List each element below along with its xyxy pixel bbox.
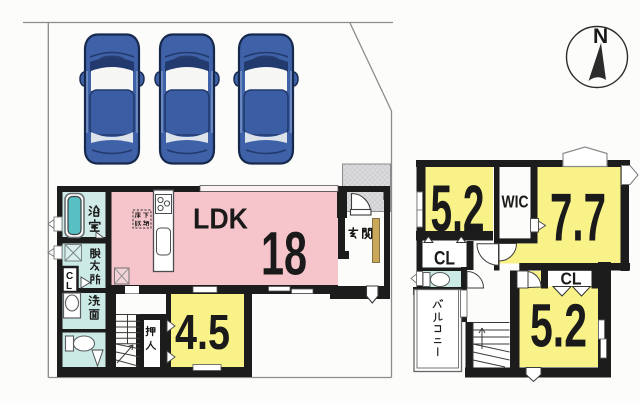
svg-text:5.2: 5.2 — [431, 171, 485, 245]
svg-text:WIC: WIC — [502, 192, 529, 212]
svg-text:18: 18 — [261, 220, 307, 288]
svg-text:LDK: LDK — [193, 204, 248, 236]
svg-text:7.7: 7.7 — [550, 180, 606, 256]
svg-text:4.5: 4.5 — [175, 306, 230, 360]
svg-text:CL: CL — [561, 269, 582, 289]
svg-text:L: L — [66, 281, 72, 292]
svg-text:CL: CL — [434, 249, 455, 270]
svg-text:N: N — [593, 25, 608, 48]
svg-text:5.2: 5.2 — [530, 292, 587, 360]
